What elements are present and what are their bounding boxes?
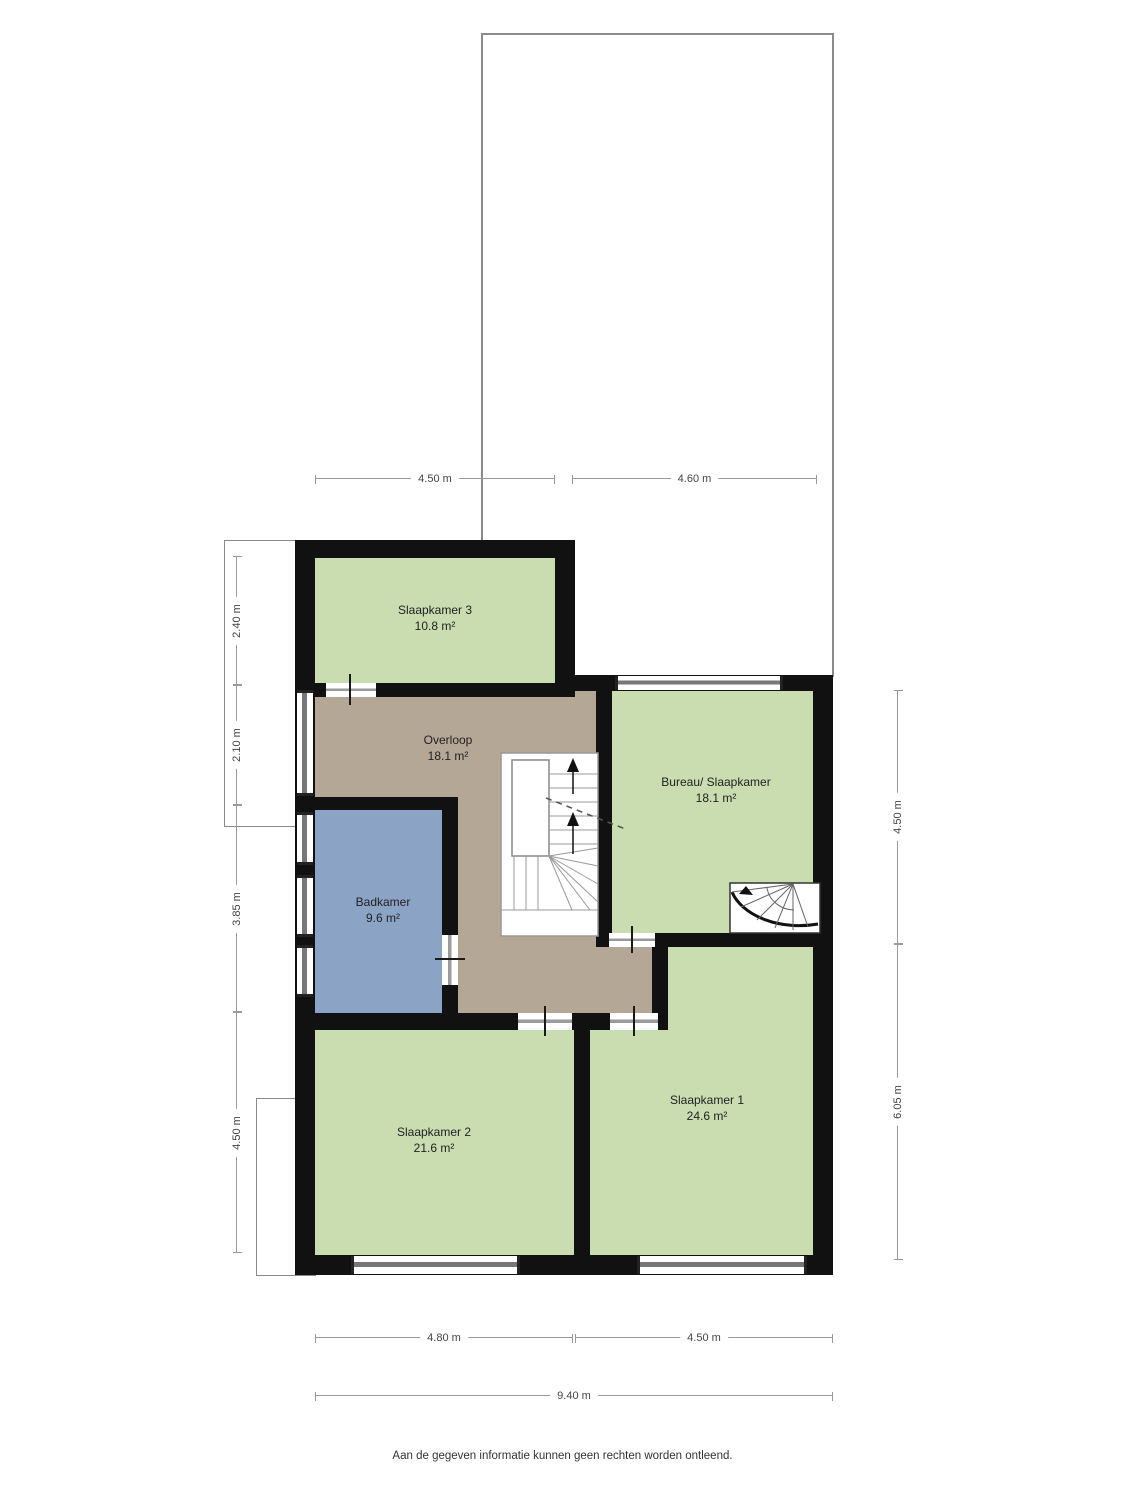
room-slaapkamer-1-upper bbox=[660, 940, 820, 1028]
dimension-top-right: 4.60 m bbox=[572, 478, 817, 479]
room-name: Slaapkamer 3 bbox=[398, 602, 472, 618]
footprint-outline-left bbox=[481, 33, 483, 541]
wall-sk3-top bbox=[295, 540, 575, 558]
spiral-staircase bbox=[729, 882, 821, 934]
room-area: 9.6 m² bbox=[356, 910, 411, 926]
room-area: 18.1 m² bbox=[661, 790, 770, 806]
room-name: Slaapkamer 1 bbox=[670, 1092, 744, 1108]
wall-badkamer-top bbox=[295, 797, 458, 810]
label-bureau-slaapkamer: Bureau/ Slaapkamer 18.1 m² bbox=[661, 774, 770, 806]
window-bureau-top bbox=[615, 676, 783, 690]
wall-sk3-right bbox=[555, 540, 575, 690]
room-area: 21.6 m² bbox=[397, 1140, 471, 1156]
room-area: 18.1 m² bbox=[424, 748, 473, 764]
dimension-label: 4.50 m bbox=[411, 473, 459, 485]
floor-plan: Slaapkamer 3 10.8 m² Overloop 18.1 m² Bu… bbox=[0, 0, 1125, 1500]
door-slaapkamer-2-leaf bbox=[544, 1006, 546, 1036]
label-slaapkamer-2: Slaapkamer 2 21.6 m² bbox=[397, 1124, 471, 1156]
dimension-label: 4.60 m bbox=[671, 473, 719, 485]
dimension-top-left: 4.50 m bbox=[315, 478, 555, 479]
dimension-left-badkamer: 3.85 m bbox=[236, 805, 237, 1012]
dimension-label: 2.40 m bbox=[231, 597, 243, 645]
dimension-right-bureau: 4.50 m bbox=[897, 690, 898, 944]
window-overloop-left bbox=[297, 690, 313, 796]
window-badkamer-left-2 bbox=[297, 875, 313, 937]
dimension-left-overloop: 2.10 m bbox=[236, 685, 237, 805]
room-area: 10.8 m² bbox=[398, 618, 472, 634]
door-badkamer bbox=[442, 935, 458, 985]
staircase bbox=[500, 752, 632, 938]
dimension-right-sk1: 6.05 m bbox=[897, 944, 898, 1260]
window-badkamer-left-3 bbox=[297, 945, 313, 997]
room-name: Overloop bbox=[424, 732, 473, 748]
wall-outer-right bbox=[813, 675, 833, 1275]
dimension-label: 4.50 m bbox=[680, 1332, 728, 1344]
footprint-outline-right bbox=[832, 33, 834, 677]
door-badkamer-leaf bbox=[435, 958, 465, 960]
room-name: Slaapkamer 2 bbox=[397, 1124, 471, 1140]
room-slaapkamer-1 bbox=[582, 1022, 820, 1262]
dimension-label: 4.50 m bbox=[231, 1109, 243, 1157]
label-overloop: Overloop 18.1 m² bbox=[424, 732, 473, 764]
label-slaapkamer-1: Slaapkamer 1 24.6 m² bbox=[670, 1092, 744, 1124]
room-name: Bureau/ Slaapkamer bbox=[661, 774, 770, 790]
footer-disclaimer: Aan de gegeven informatie kunnen geen re… bbox=[0, 1450, 1125, 1462]
label-badkamer: Badkamer 9.6 m² bbox=[356, 894, 411, 926]
dimension-left-sk3: 2.40 m bbox=[236, 556, 237, 685]
dimension-bottom-sk2: 4.80 m bbox=[315, 1337, 573, 1338]
door-slaapkamer-3 bbox=[326, 683, 376, 697]
dimension-bottom-sk1: 4.50 m bbox=[575, 1337, 833, 1338]
dimension-left-sk2: 4.50 m bbox=[236, 1012, 237, 1253]
room-name: Badkamer bbox=[356, 894, 411, 910]
window-slaapkamer-1 bbox=[637, 1256, 807, 1274]
dimension-label: 4.80 m bbox=[420, 1332, 468, 1344]
dimension-label: 2.10 m bbox=[231, 721, 243, 769]
footprint-outline-top bbox=[481, 33, 834, 35]
door-slaapkamer-1-leaf bbox=[633, 1006, 635, 1036]
dimension-label: 9.40 m bbox=[550, 1390, 598, 1402]
room-area: 24.6 m² bbox=[670, 1108, 744, 1124]
dimension-bottom-total: 9.40 m bbox=[315, 1395, 833, 1396]
dimension-label: 4.50 m bbox=[892, 793, 904, 841]
dimension-label: 6.05 m bbox=[892, 1078, 904, 1126]
label-slaapkamer-3: Slaapkamer 3 10.8 m² bbox=[398, 602, 472, 634]
wall-sk1-sk2-divider bbox=[574, 1030, 590, 1258]
dimension-label: 3.85 m bbox=[231, 885, 243, 933]
door-slaapkamer-3-leaf bbox=[349, 674, 351, 705]
window-badkamer-left-1 bbox=[297, 812, 313, 865]
window-slaapkamer-2 bbox=[351, 1256, 520, 1274]
